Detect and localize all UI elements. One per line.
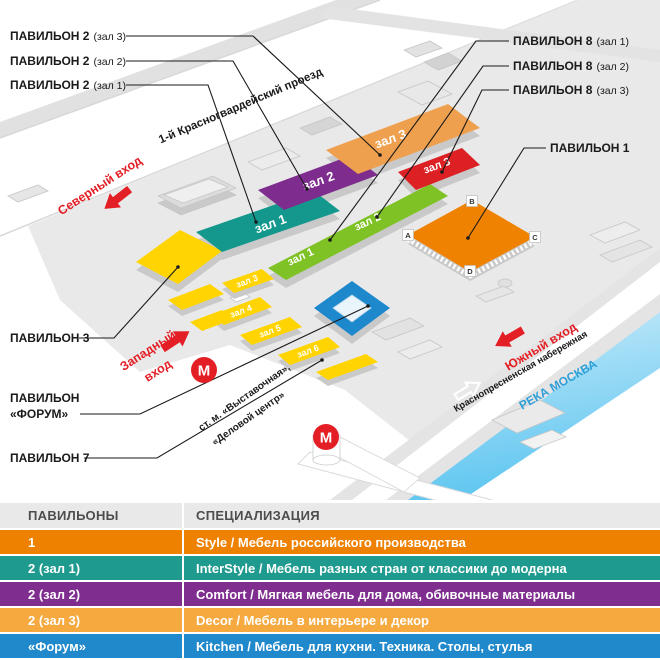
legend-row-pavilion-2-hall-2: 2 (зал 2) Comfort / Мягкая мебель для до… [0, 582, 660, 606]
callout-pavilion-2-hall-1: ПАВИЛЬОН 2(зал 1) [10, 78, 126, 92]
legend-row-pavilion-2-hall-1: 2 (зал 1) InterStyle / Мебель разных стр… [0, 556, 660, 580]
pavilion-1-corner-b: В [469, 197, 475, 206]
legend-row-pavilion-2-hall-3: 2 (зал 3) Decor / Мебель в интерьере и д… [0, 608, 660, 632]
site-map: зал 1 зал 2 зал 3 зал 1 зал 2 зал 3 А В … [0, 0, 660, 500]
callout-pavilion-forum-line2: «ФОРУМ» [10, 407, 69, 421]
metro-station-icon: М [320, 430, 333, 447]
legend-header-pavilions: ПАВИЛЬОНЫ [0, 503, 184, 528]
pavilion-1-corner-a: А [405, 231, 411, 240]
metro-west-icon: М [198, 363, 211, 380]
callout-pavilion-1: ПАВИЛЬОН 1 [550, 141, 630, 155]
callout-pavilion-7: ПАВИЛЬОН 7 [10, 451, 90, 465]
callout-pavilion-2-hall-3: ПАВИЛЬОН 2(зал 3) [10, 29, 126, 43]
callout-pavilion-forum-line1: ПАВИЛЬОН [10, 391, 79, 405]
expo-map-page: зал 1 зал 2 зал 3 зал 1 зал 2 зал 3 А В … [0, 0, 660, 660]
callout-pavilion-8-hall-2: ПАВИЛЬОН 8(зал 2) [513, 59, 629, 73]
legend-header-specialization: СПЕЦИАЛИЗАЦИЯ [184, 503, 660, 528]
pavilion-1-corner-c: С [532, 233, 538, 242]
callout-pavilion-8-hall-1: ПАВИЛЬОН 8(зал 1) [513, 34, 629, 48]
legend-table: ПАВИЛЬОНЫ СПЕЦИАЛИЗАЦИЯ 1 Style / Мебель… [0, 500, 660, 660]
legend-header-row: ПАВИЛЬОНЫ СПЕЦИАЛИЗАЦИЯ [0, 503, 660, 528]
legend-row-forum: «Форум» Kitchen / Мебель для кухни. Техн… [0, 634, 660, 658]
pavilion-1-corner-d: D [467, 267, 473, 276]
callout-pavilion-3: ПАВИЛЬОН 3 [10, 331, 90, 345]
legend-row-pavilion-1: 1 Style / Мебель российского производств… [0, 530, 660, 554]
callout-pavilion-2-hall-2: ПАВИЛЬОН 2(зал 2) [10, 54, 126, 68]
callout-pavilion-8-hall-3: ПАВИЛЬОН 8(зал 3) [513, 83, 629, 97]
